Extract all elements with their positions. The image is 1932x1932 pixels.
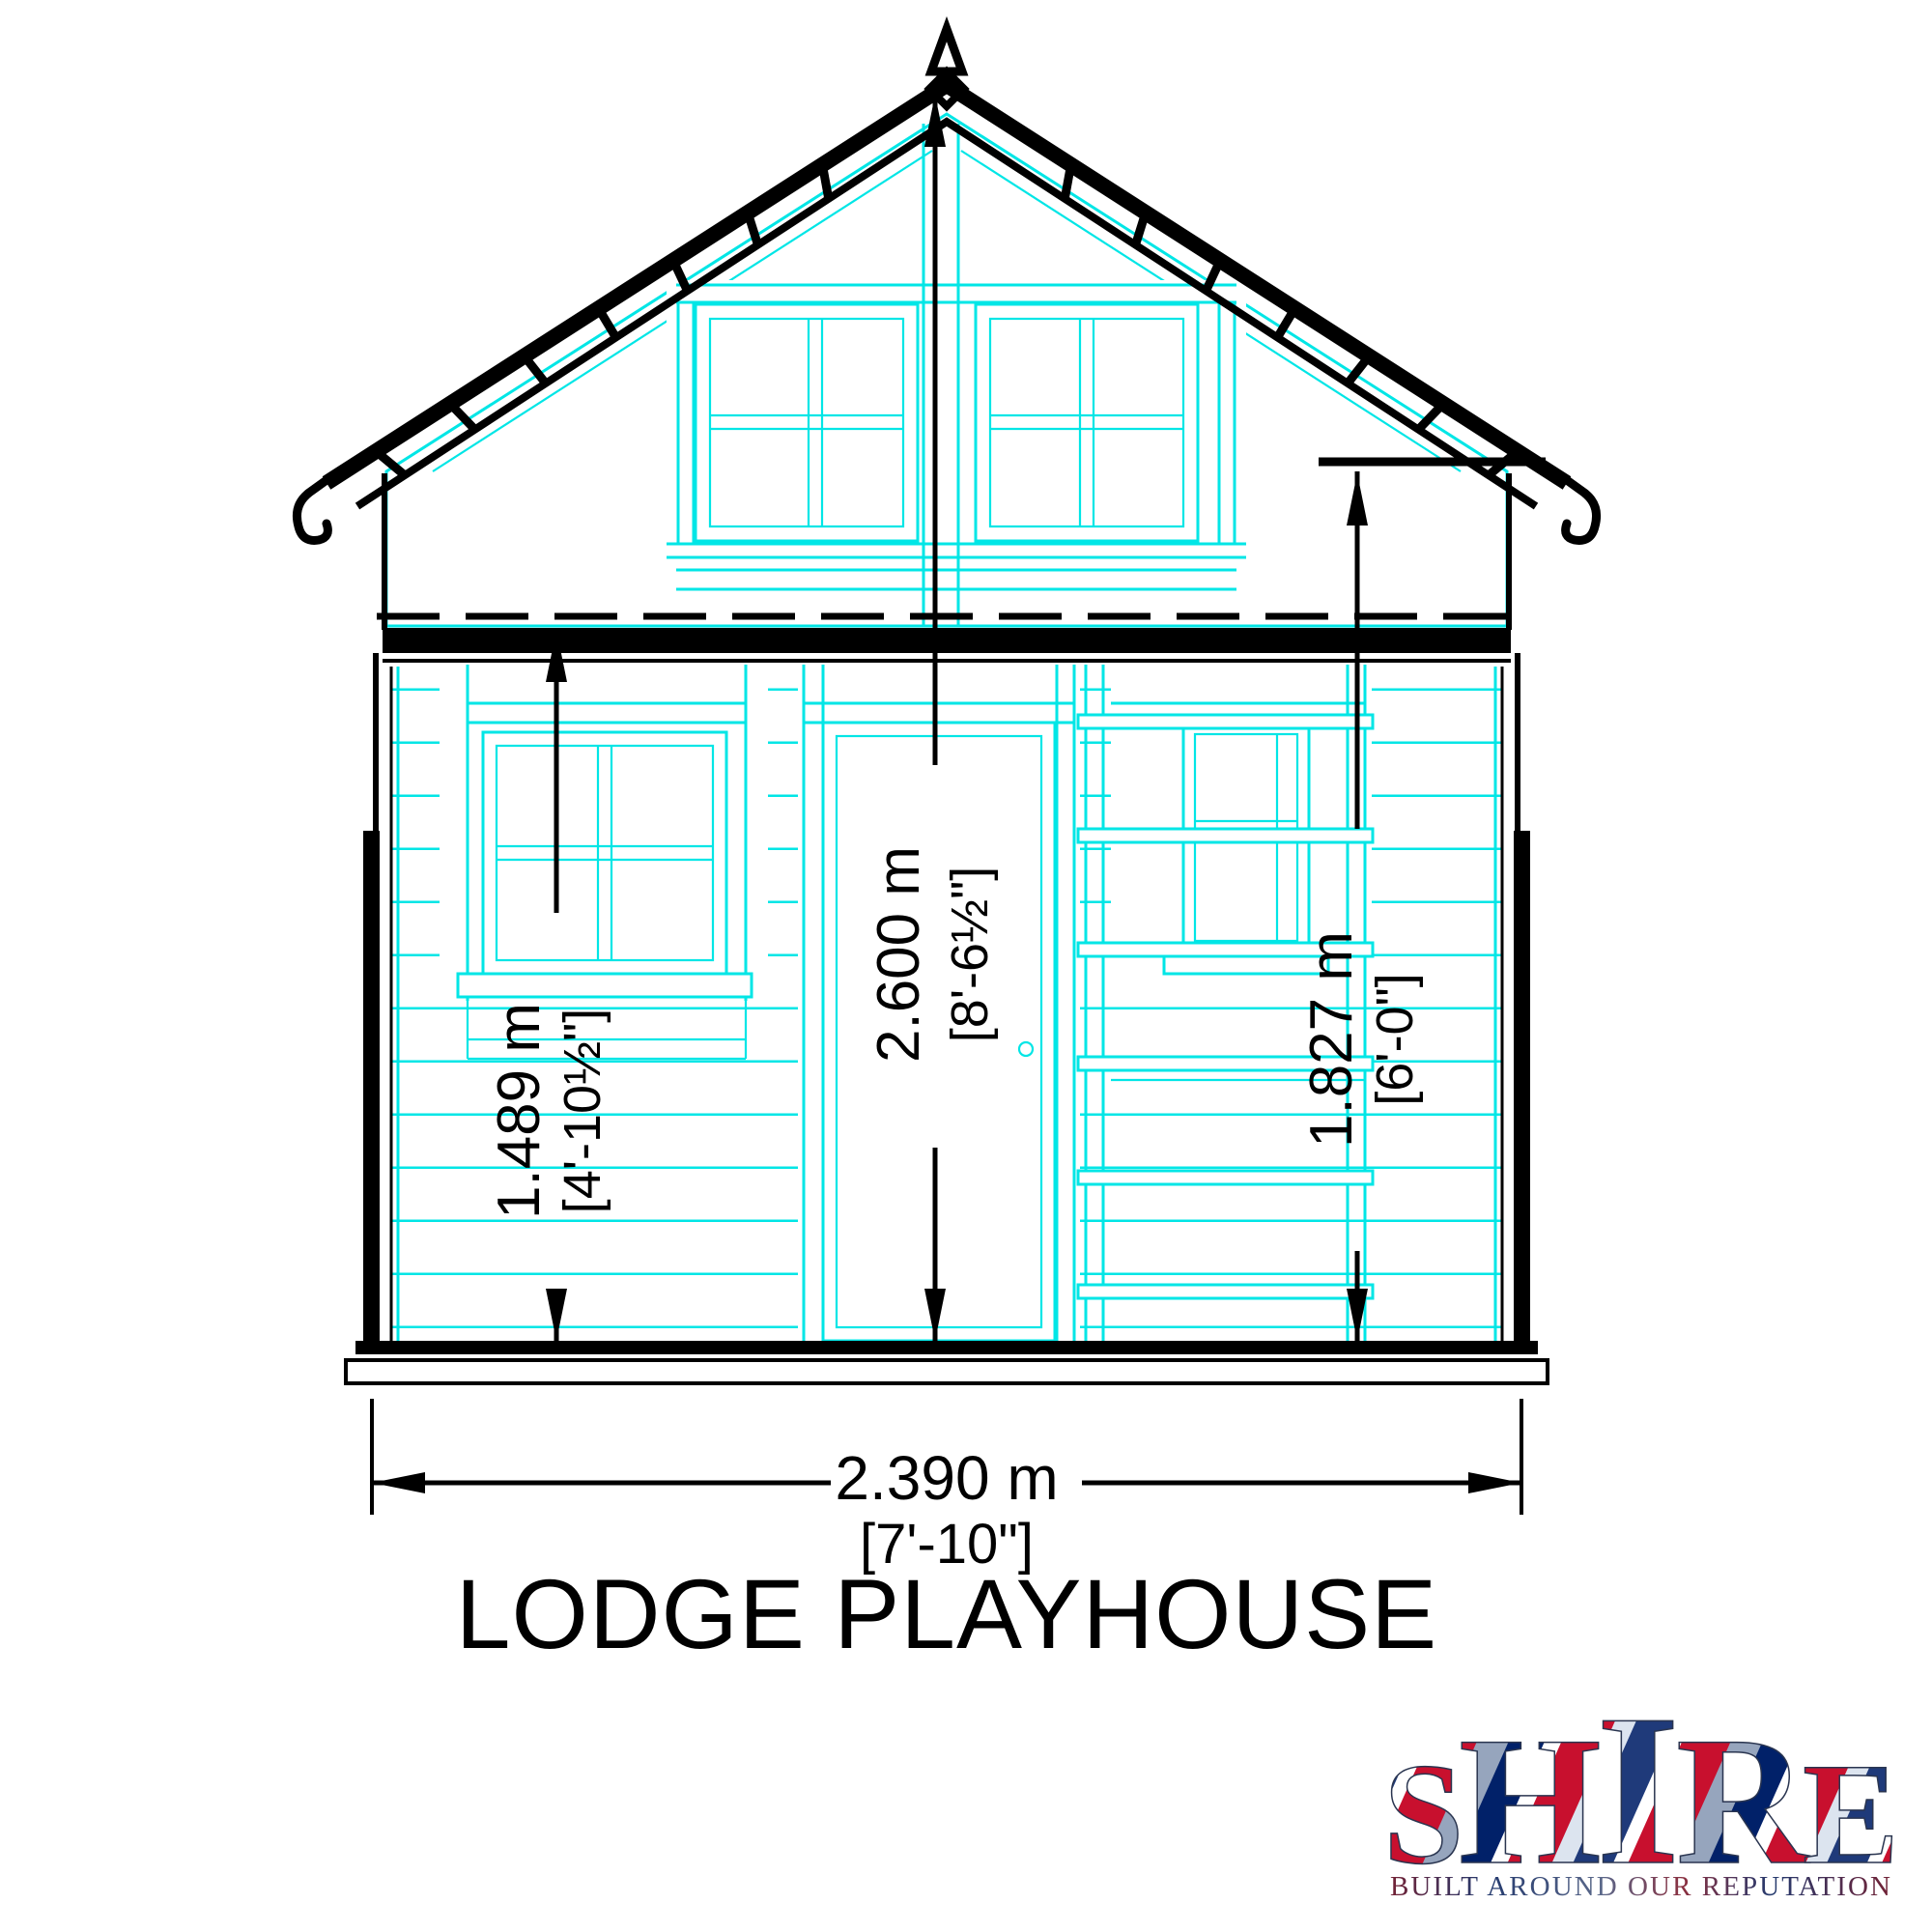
corner-post-left (363, 831, 380, 1343)
brand-logo: S H I R E BUILT AROUND OUR REPUTATION (1383, 1670, 1899, 1910)
corner-post-right (1514, 831, 1530, 1343)
door (798, 665, 1080, 1345)
dim-width-metric: 2.390 m (835, 1443, 1058, 1513)
gable-window-assembly (667, 280, 1246, 618)
dimension-width-overall: 2.390 m [7'-10"] (372, 1399, 1521, 1576)
gable-window-right (976, 304, 1198, 541)
playhouse-elevation-sheet: 1.489 m [4'-10½"] 2.600 m [8'-6½"] 1.827… (0, 0, 1932, 1932)
dim-height-center-imperial: [8'-6½"] (941, 867, 999, 1043)
brand-tagline: BUILT AROUND OUR REPUTATION (1390, 1872, 1892, 1902)
elevation-drawing: 1.489 m [4'-10½"] 2.600 m [8'-6½"] 1.827… (0, 0, 1932, 1932)
dim-height-right-metric: 1.827 m (1298, 931, 1365, 1148)
dim-height-left-metric: 1.489 m (486, 1003, 553, 1219)
dim-height-center-metric: 2.600 m (866, 846, 932, 1063)
dim-height-left-imperial: [4'-10½"] (554, 1009, 611, 1214)
dim-height-right-imperial: [6'-0"] (1366, 973, 1424, 1106)
floor-base (346, 1341, 1548, 1383)
gable-window-left (696, 304, 918, 541)
eaves-band (377, 616, 1517, 661)
window-lower-left (440, 665, 768, 1059)
logo-letter-s: S (1383, 1734, 1463, 1894)
drawing-title: LODGE PLAYHOUSE (456, 1559, 1437, 1669)
logo-letter-e: E (1803, 1734, 1899, 1894)
